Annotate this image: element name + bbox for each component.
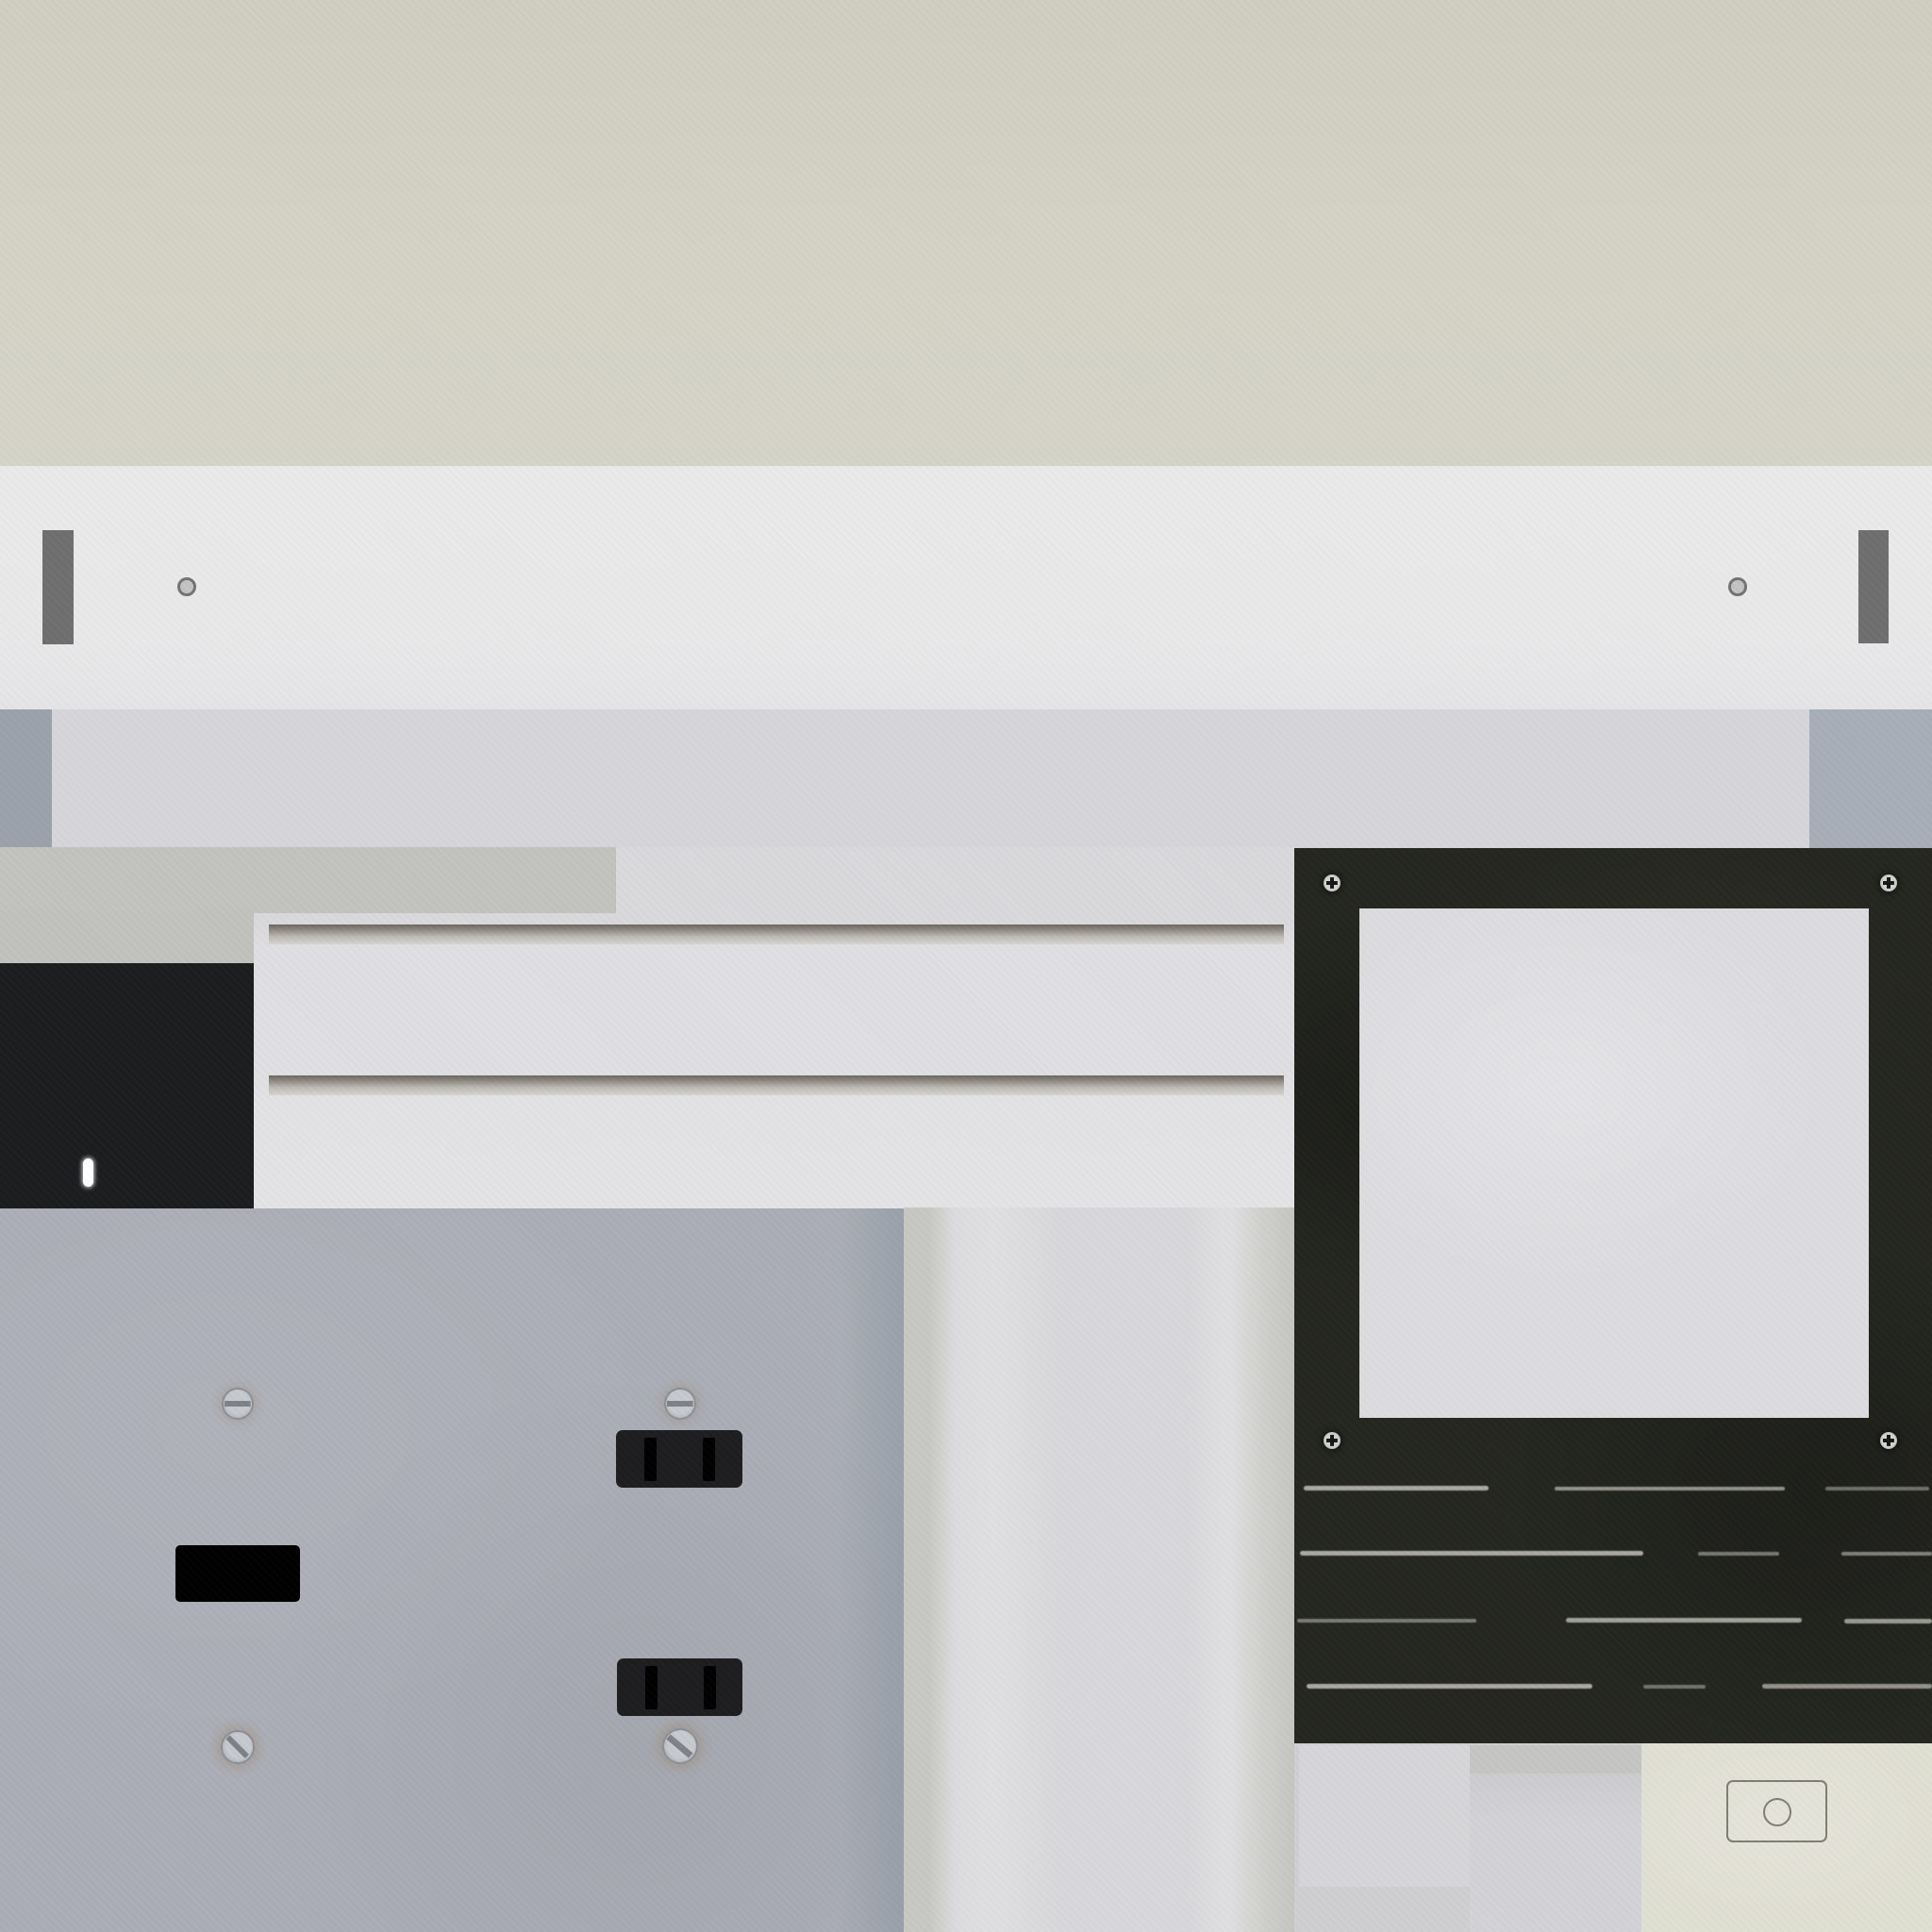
- scene-root: [0, 0, 1932, 1932]
- vignette-overlay: [0, 0, 1932, 1932]
